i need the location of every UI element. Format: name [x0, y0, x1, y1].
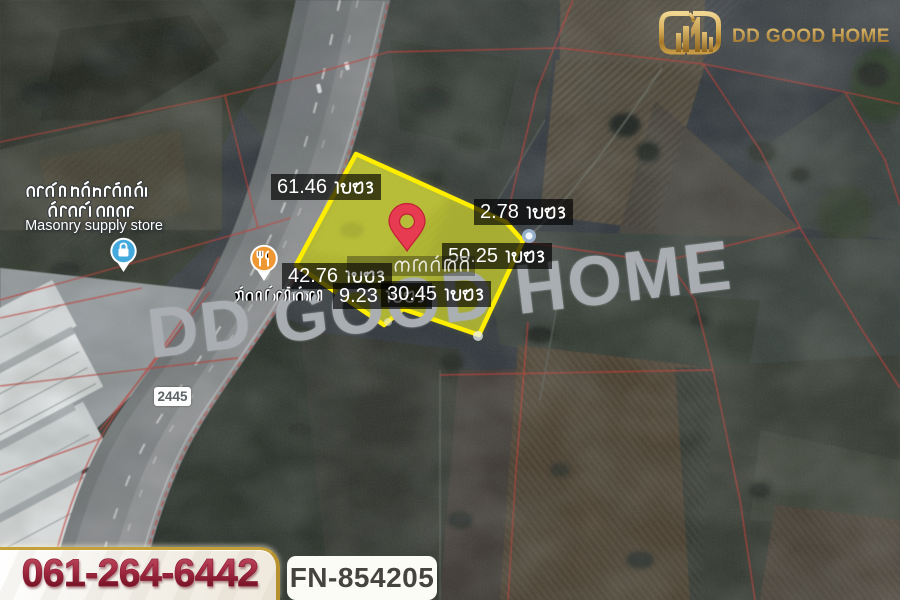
- svg-text:DD GOOD HOME: DD GOOD HOME: [732, 26, 890, 47]
